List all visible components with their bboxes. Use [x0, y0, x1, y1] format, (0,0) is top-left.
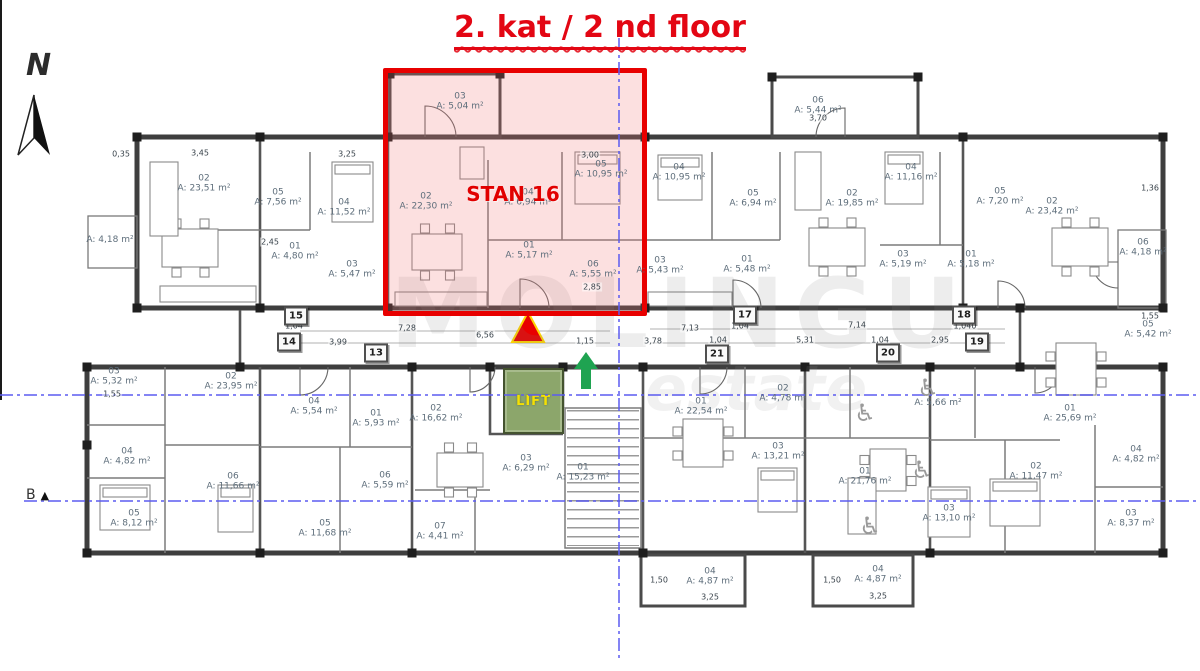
lift-label: LIFT — [516, 394, 551, 409]
stan16-label: STAN 16 — [466, 182, 560, 206]
direction-arrow-icon — [574, 352, 598, 389]
dimension-lines — [300, 329, 1005, 343]
section-marker-letter: B — [26, 487, 36, 503]
north-arrow-icon — [18, 95, 50, 155]
section-marker-b: B ▲ — [26, 487, 49, 503]
floorplan-canvas: LIFT MOLINGU estate 02A: 23,51 m²05A: 7,… — [0, 0, 1200, 671]
lift: LIFT — [503, 368, 564, 434]
staircase — [567, 410, 639, 546]
entrance-marker-triangle — [512, 312, 544, 342]
page-title: 2. kat / 2 nd floor — [454, 10, 746, 50]
compass-label: N — [26, 48, 51, 83]
section-marker-triangle-icon: ▲ — [41, 489, 49, 502]
